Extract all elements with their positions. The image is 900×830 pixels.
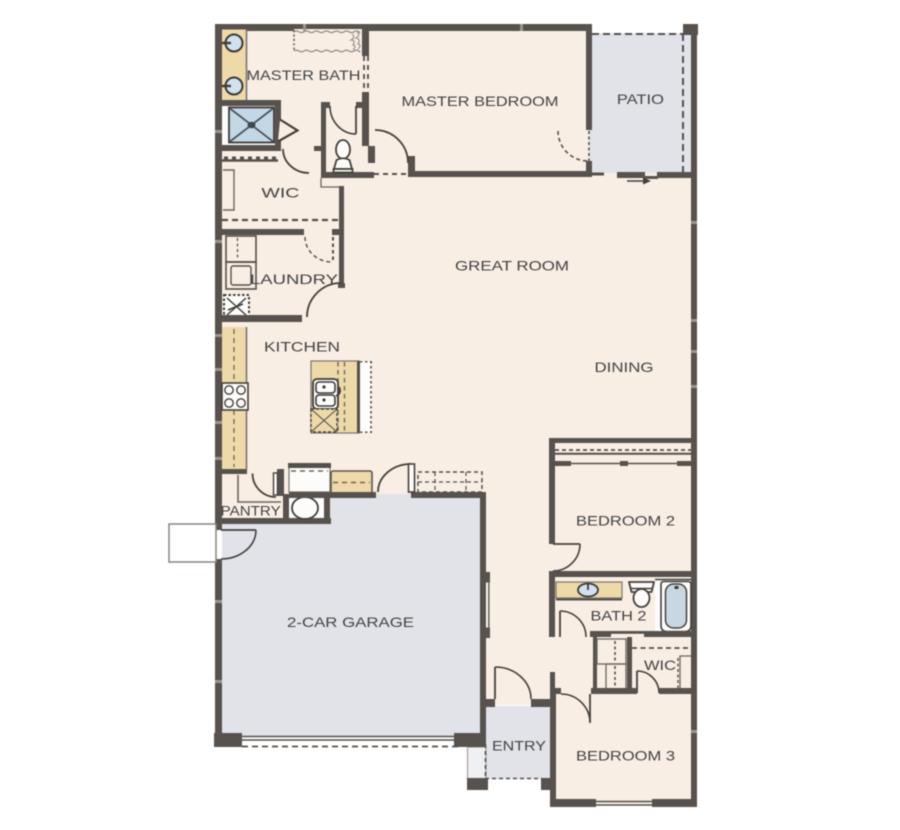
svg-text:GREAT ROOM: GREAT ROOM (455, 258, 569, 274)
svg-text:BEDROOM 3: BEDROOM 3 (576, 748, 675, 764)
svg-text:2-CAR GARAGE: 2-CAR GARAGE (287, 614, 414, 630)
svg-text:PATIO: PATIO (617, 91, 664, 107)
svg-text:MASTER BEDROOM: MASTER BEDROOM (402, 93, 559, 109)
svg-text:MASTER BATH: MASTER BATH (247, 67, 361, 83)
svg-text:LAUNDRY: LAUNDRY (250, 271, 339, 287)
svg-text:PANTRY: PANTRY (221, 503, 282, 519)
svg-text:DINING: DINING (595, 359, 654, 375)
svg-text:ENTRY: ENTRY (492, 738, 547, 754)
svg-text:WIC: WIC (261, 185, 299, 201)
svg-text:WIC: WIC (644, 657, 676, 673)
svg-text:BATH 2: BATH 2 (591, 608, 647, 624)
svg-text:KITCHEN: KITCHEN (264, 339, 340, 355)
svg-text:BEDROOM 2: BEDROOM 2 (576, 513, 675, 529)
